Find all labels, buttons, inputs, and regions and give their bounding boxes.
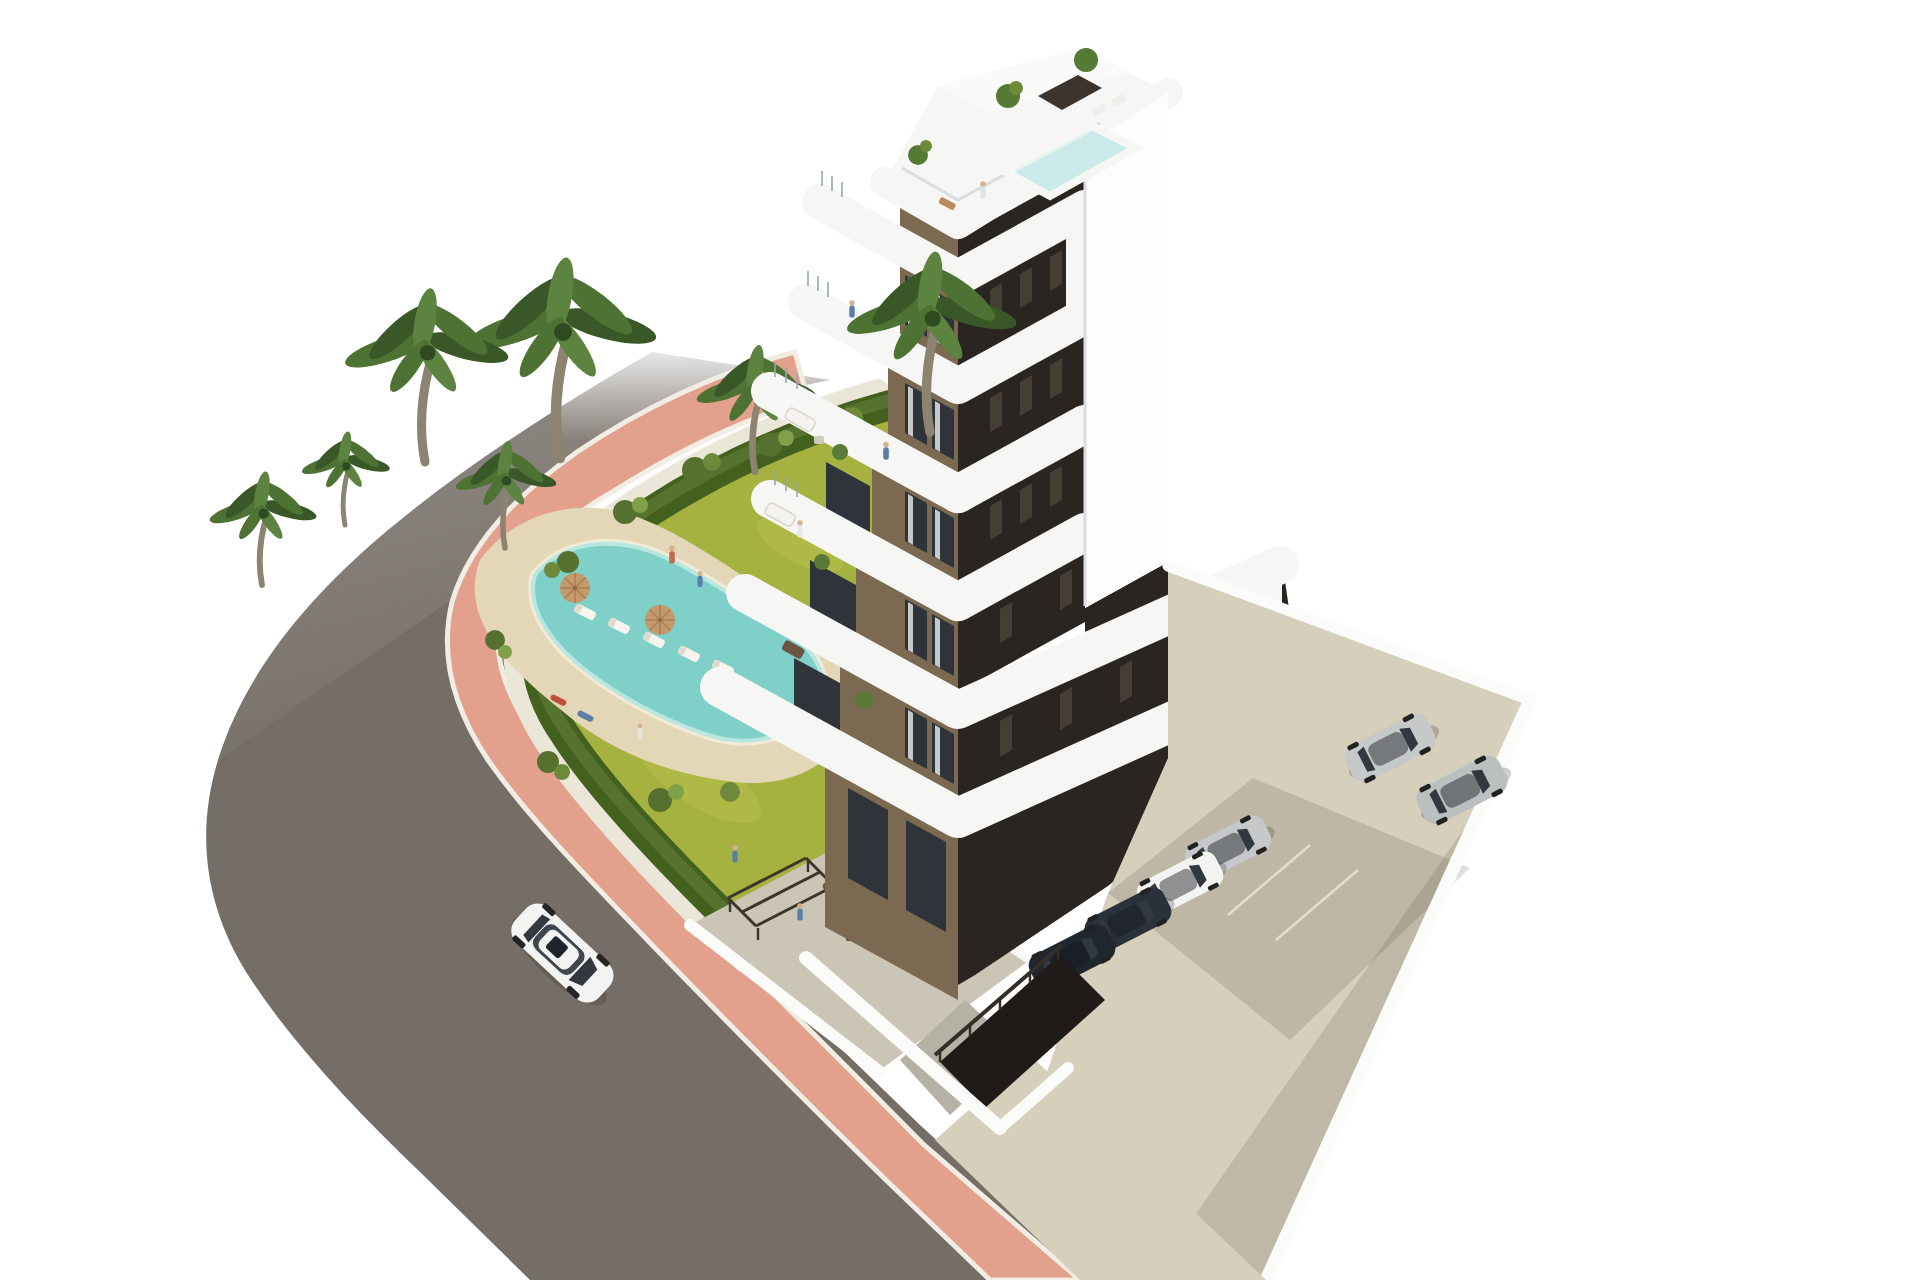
person	[669, 546, 675, 564]
person	[638, 723, 643, 738]
person	[797, 520, 802, 537]
pool-umbrella	[560, 573, 590, 603]
person	[697, 571, 702, 587]
scene-root	[0, 0, 1920, 1280]
person	[883, 442, 889, 460]
pool-umbrella	[645, 605, 675, 635]
person	[797, 903, 802, 920]
person	[849, 300, 854, 317]
person	[980, 181, 985, 198]
render-canvas	[0, 0, 1920, 1280]
person	[732, 845, 737, 862]
